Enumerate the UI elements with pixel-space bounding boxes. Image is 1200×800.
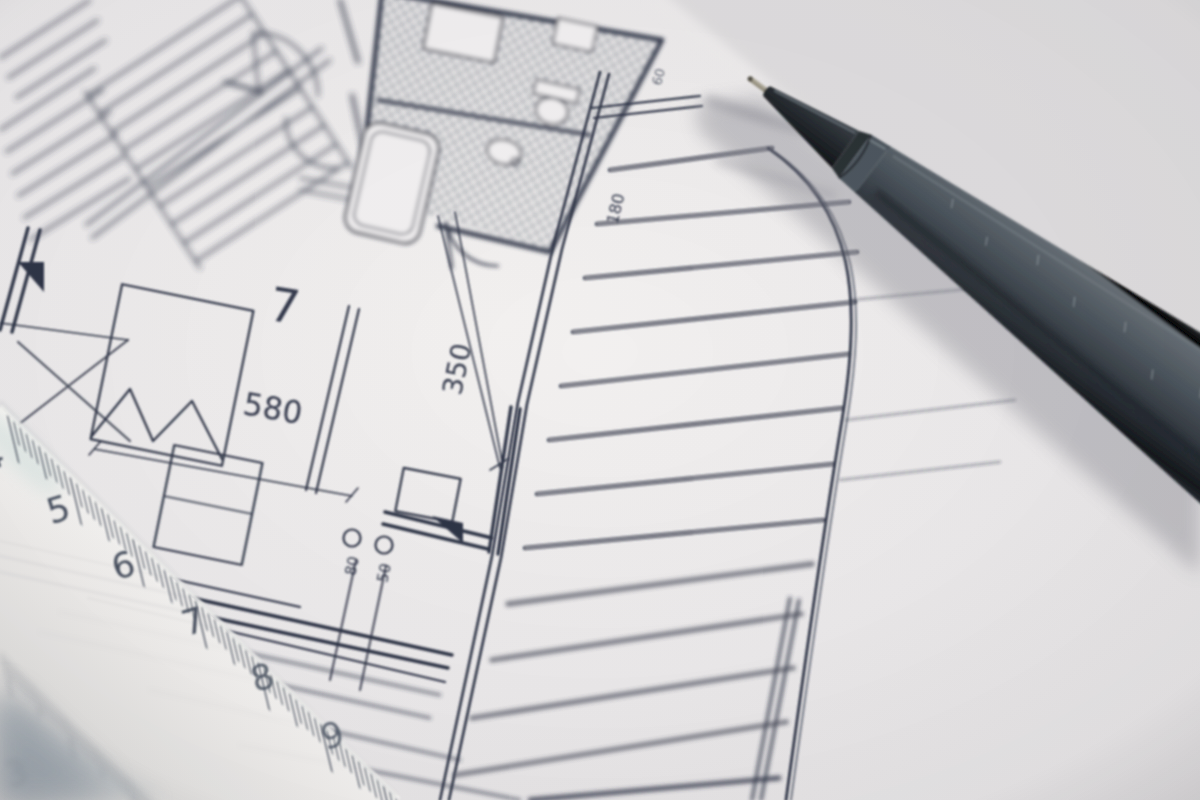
blueprint-photo: 7 580 350 80 50 (0, 0, 1200, 800)
